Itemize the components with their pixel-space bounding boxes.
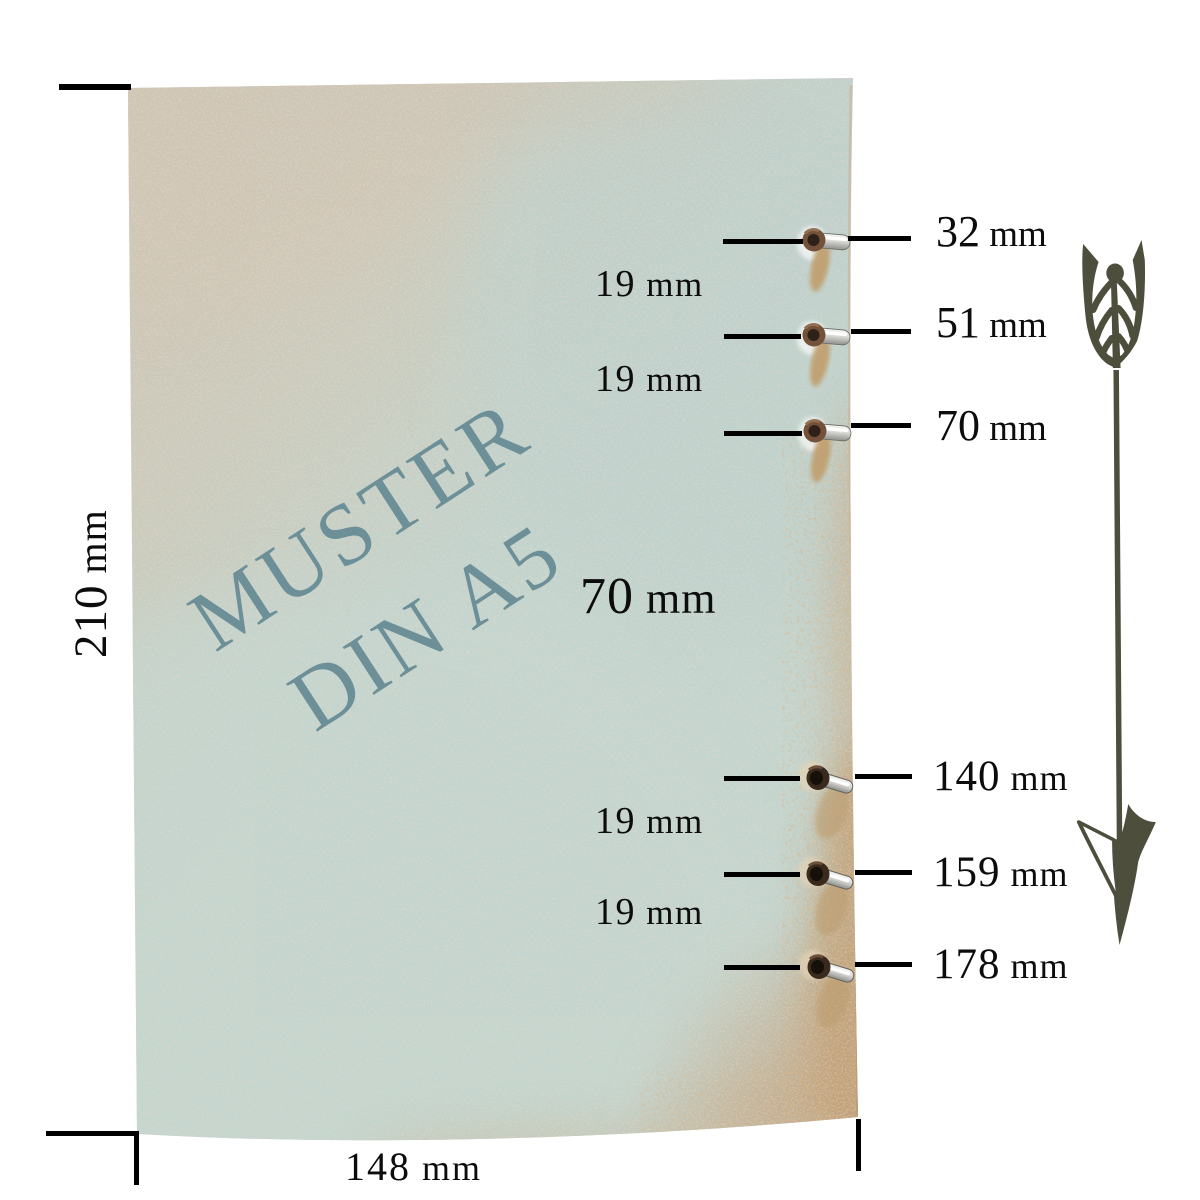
svg-text:19 mm: 19 mm	[595, 263, 704, 305]
svg-text:70 mm: 70 mm	[580, 568, 716, 625]
svg-text:51 mm: 51 mm	[936, 298, 1047, 347]
svg-text:32 mm: 32 mm	[936, 207, 1047, 256]
svg-text:140 mm: 140 mm	[933, 753, 1069, 800]
svg-text:178 mm: 178 mm	[933, 941, 1069, 988]
svg-text:19 mm: 19 mm	[595, 800, 704, 842]
svg-text:210 mm: 210 mm	[65, 509, 117, 658]
svg-text:70 mm: 70 mm	[936, 401, 1047, 450]
svg-text:19 mm: 19 mm	[595, 891, 704, 933]
svg-text:159 mm: 159 mm	[933, 849, 1069, 896]
svg-text:148 mm: 148 mm	[345, 1144, 482, 1189]
svg-text:19 mm: 19 mm	[595, 358, 704, 400]
